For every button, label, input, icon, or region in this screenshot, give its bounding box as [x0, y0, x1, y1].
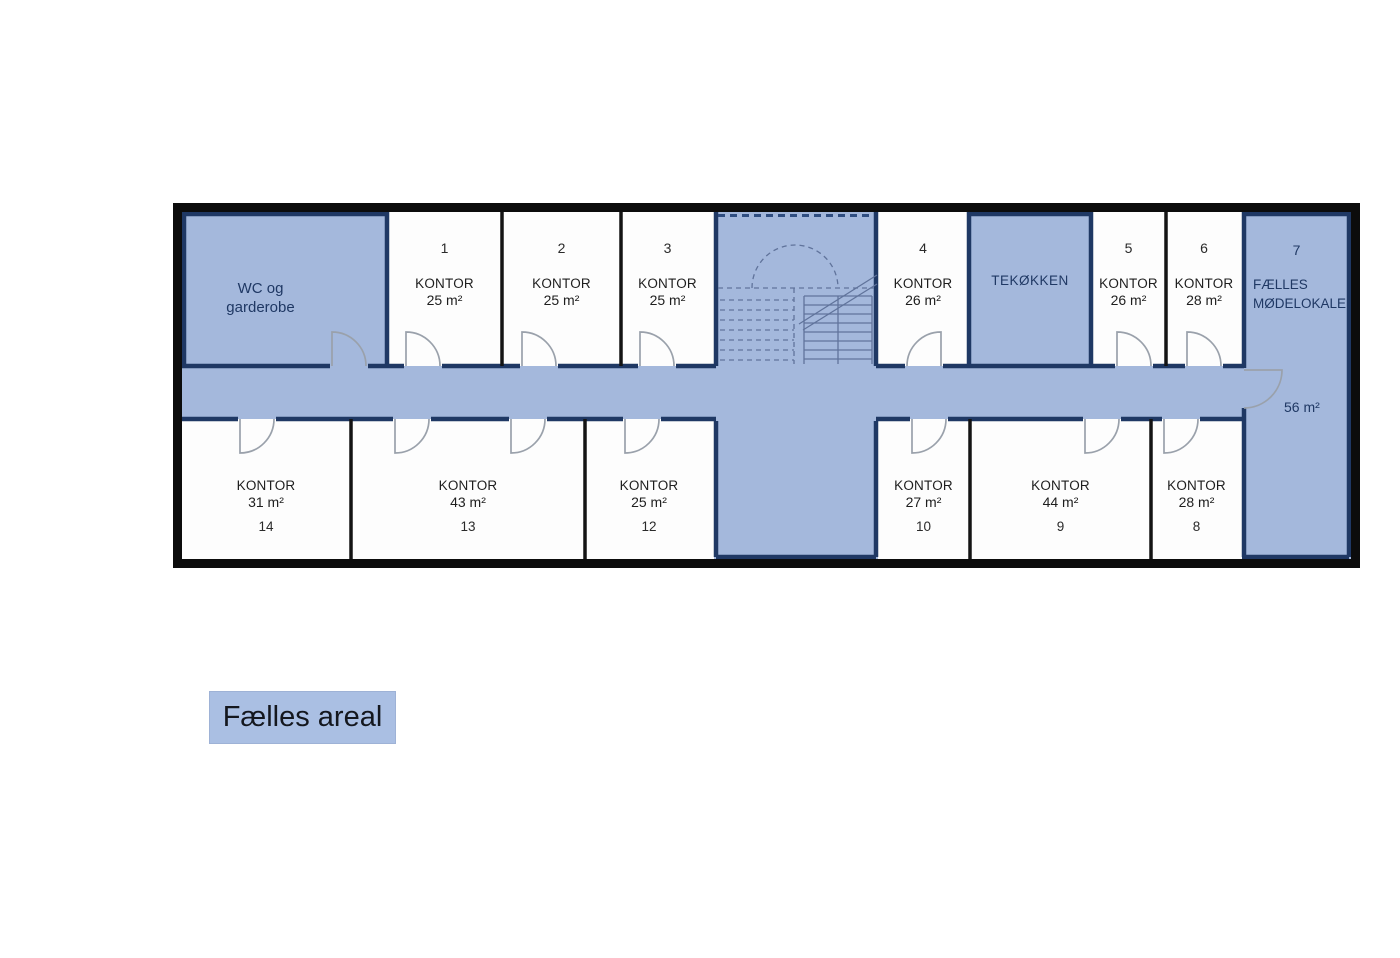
- room-office-5: 5 KONTOR 26 m²: [1092, 212, 1165, 366]
- room-label-line1: FÆLLES: [1253, 275, 1346, 294]
- room-office-2: 2 KONTOR 25 m²: [503, 212, 620, 366]
- room-office-1: 1 KONTOR 25 m²: [388, 212, 501, 366]
- room-type-label: KONTOR: [237, 478, 296, 493]
- room-number: 8: [1193, 519, 1201, 534]
- room-label-line1: WC og: [158, 280, 363, 299]
- room-label: FÆLLES MØDELOKALE: [1253, 275, 1346, 313]
- room-type-label: KONTOR: [638, 276, 697, 291]
- room-type-label: KONTOR: [439, 478, 498, 493]
- room-office-9: KONTOR 44 m² 9: [971, 419, 1150, 559]
- room-label-line2: garderobe: [158, 299, 363, 318]
- room-wc-garderobe: WC og garderobe: [182, 212, 387, 368]
- room-type-label: KONTOR: [1099, 276, 1158, 291]
- room-type-label: KONTOR: [1167, 478, 1226, 493]
- room-area: 26 m²: [1111, 292, 1147, 308]
- room-type-label: KONTOR: [1031, 478, 1090, 493]
- room-number: 7: [1293, 242, 1301, 258]
- room-meeting: 7 FÆLLES MØDELOKALE 56 m²: [1242, 212, 1351, 559]
- room-number: 3: [664, 240, 672, 256]
- room-label: WC og garderobe: [158, 280, 363, 317]
- room-number: 6: [1200, 240, 1208, 256]
- room-label-line2: MØDELOKALE: [1253, 294, 1346, 313]
- room-area: 43 m²: [450, 494, 486, 510]
- room-area: 25 m²: [427, 292, 463, 308]
- floor-plan: WC og garderobe TEKØKKEN 7 FÆLLES MØDELO…: [173, 203, 1360, 568]
- room-office-8: KONTOR 28 m² 8: [1152, 419, 1241, 559]
- room-area: 28 m²: [1186, 292, 1222, 308]
- room-label: TEKØKKEN: [991, 273, 1069, 368]
- room-area: 25 m²: [650, 292, 686, 308]
- legend-common-area: Fælles areal: [209, 691, 396, 744]
- room-type-label: KONTOR: [1175, 276, 1234, 291]
- room-type-label: KONTOR: [415, 276, 474, 291]
- room-type-label: KONTOR: [532, 276, 591, 291]
- room-office-14: KONTOR 31 m² 14: [182, 419, 350, 559]
- room-number: 10: [916, 519, 931, 534]
- room-office-3: 3 KONTOR 25 m²: [622, 212, 713, 366]
- room-tekokken: TEKØKKEN: [969, 212, 1091, 368]
- room-number: 5: [1125, 240, 1133, 256]
- room-number: 13: [460, 519, 475, 534]
- legend-label: Fælles areal: [223, 701, 383, 734]
- room-number: 9: [1057, 519, 1065, 534]
- room-office-13: KONTOR 43 m² 13: [352, 419, 584, 559]
- room-number: 1: [441, 240, 449, 256]
- room-type-label: KONTOR: [894, 478, 953, 493]
- room-area: 28 m²: [1179, 494, 1215, 510]
- room-area: 25 m²: [631, 494, 667, 510]
- room-number: 4: [919, 240, 927, 256]
- room-area: 26 m²: [905, 292, 941, 308]
- room-type-label: KONTOR: [894, 276, 953, 291]
- room-office-12: KONTOR 25 m² 12: [586, 419, 712, 559]
- room-number: 12: [641, 519, 656, 534]
- room-office-4: 4 KONTOR 26 m²: [878, 212, 968, 366]
- room-number: 2: [558, 240, 566, 256]
- room-office-6: 6 KONTOR 28 m²: [1167, 212, 1241, 366]
- room-area: 25 m²: [544, 292, 580, 308]
- room-office-10: KONTOR 27 m² 10: [878, 419, 969, 559]
- room-area: 31 m²: [248, 494, 284, 510]
- room-type-label: KONTOR: [620, 478, 679, 493]
- room-area: 27 m²: [906, 494, 942, 510]
- room-area: 56 m²: [1284, 399, 1320, 415]
- room-area: 44 m²: [1043, 494, 1079, 510]
- room-number: 14: [258, 519, 273, 534]
- corridor: [182, 366, 1242, 419]
